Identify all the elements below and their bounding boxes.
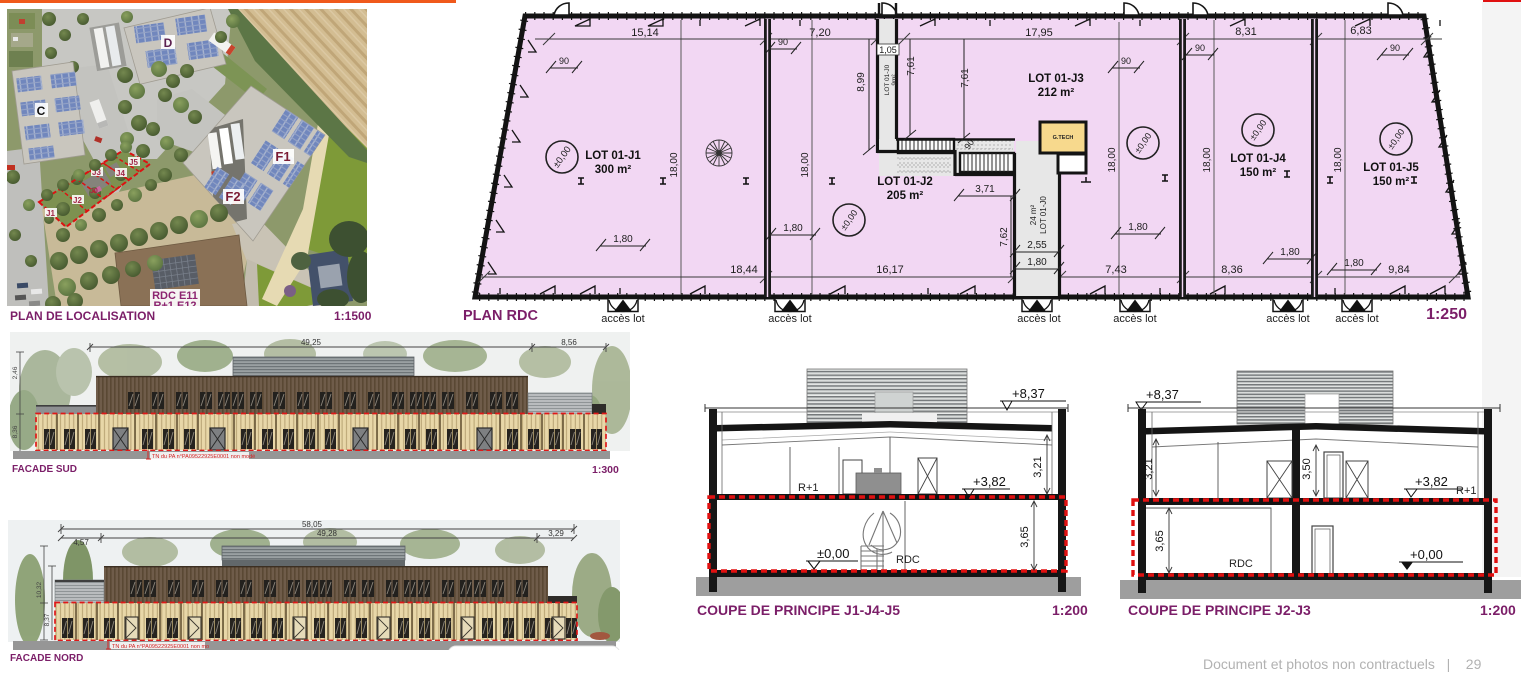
- svg-text:1,80: 1,80: [1027, 257, 1047, 268]
- svg-text:90: 90: [778, 37, 788, 47]
- svg-text:accès lot: accès lot: [768, 313, 811, 325]
- svg-text:24 m²: 24 m²: [1029, 204, 1038, 225]
- svg-text:8,36: 8,36: [1221, 264, 1242, 276]
- svg-text:R+1: R+1: [798, 482, 819, 494]
- svg-text:accès lot: accès lot: [1113, 313, 1156, 325]
- svg-text:accès lot: accès lot: [1017, 313, 1060, 325]
- svg-text:1,80: 1,80: [613, 234, 633, 245]
- svg-text:3,50: 3,50: [1301, 458, 1313, 479]
- svg-text:accès lot: accès lot: [601, 313, 644, 325]
- svg-text:J4: J4: [116, 169, 125, 178]
- svg-text:16,17: 16,17: [876, 264, 904, 276]
- svg-text:8,99: 8,99: [856, 72, 867, 92]
- svg-text:8,36: 8,36: [12, 425, 19, 438]
- svg-text:49,28: 49,28: [317, 529, 338, 538]
- svg-text:D: D: [164, 36, 173, 50]
- svg-text:RDC: RDC: [1229, 558, 1253, 570]
- svg-text:90: 90: [1390, 43, 1400, 53]
- svg-text:17,95: 17,95: [1025, 27, 1053, 39]
- svg-text:7,61: 7,61: [906, 56, 917, 76]
- svg-text:LOT 01-J0: LOT 01-J0: [884, 64, 891, 95]
- svg-text:18,00: 18,00: [800, 152, 811, 177]
- svg-text:F2: F2: [225, 189, 240, 204]
- svg-text:1,05: 1,05: [879, 45, 897, 55]
- svg-text:90: 90: [559, 56, 569, 66]
- svg-text:3,21: 3,21: [1143, 458, 1155, 479]
- svg-text:3,21: 3,21: [1032, 456, 1044, 477]
- svg-text:150 m²: 150 m²: [1373, 176, 1410, 188]
- svg-text:LOT 01-J0: LOT 01-J0: [1039, 196, 1048, 234]
- svg-text:LOT 01-J2: LOT 01-J2: [877, 176, 933, 188]
- svg-text:18,00: 18,00: [1202, 147, 1213, 172]
- svg-text:6,83: 6,83: [1350, 25, 1371, 37]
- svg-text:2,46: 2,46: [12, 366, 19, 379]
- svg-text:15,14: 15,14: [631, 27, 659, 39]
- svg-text:LOT 01-J3: LOT 01-J3: [1028, 73, 1084, 85]
- svg-text:+3,82: +3,82: [1415, 474, 1448, 489]
- svg-text:J2: J2: [73, 196, 82, 205]
- svg-text:F1: F1: [275, 149, 290, 164]
- svg-text:150 m²: 150 m²: [1240, 167, 1277, 179]
- svg-text:7,43: 7,43: [1105, 264, 1126, 276]
- svg-text:2,55: 2,55: [1027, 240, 1047, 251]
- svg-text:212 m²: 212 m²: [1038, 87, 1075, 99]
- svg-text:J0: J0: [90, 188, 98, 195]
- svg-text:18,00: 18,00: [669, 152, 680, 177]
- svg-text:9,84: 9,84: [1388, 264, 1409, 276]
- svg-text:+8,37: +8,37: [1146, 387, 1179, 402]
- svg-text:8,37: 8,37: [44, 613, 51, 626]
- svg-text:1,80: 1,80: [783, 223, 803, 234]
- svg-text:TN du PA n°PA09522925E0001 non: TN du PA n°PA09522925E0001 non mo: [112, 644, 209, 650]
- svg-text:G.TECH: G.TECH: [1053, 135, 1074, 141]
- svg-text:10,32: 10,32: [36, 581, 43, 598]
- svg-text:J1: J1: [46, 209, 55, 218]
- svg-text:3,71: 3,71: [975, 184, 995, 195]
- svg-text:R+1: R+1: [1456, 485, 1477, 497]
- svg-text:+3,82: +3,82: [973, 474, 1006, 489]
- svg-text:J5: J5: [129, 158, 138, 167]
- svg-text:205 m²: 205 m²: [887, 190, 924, 202]
- svg-text:7,62: 7,62: [999, 227, 1010, 247]
- svg-text:300 m²: 300 m²: [595, 164, 632, 176]
- svg-text:18,00: 18,00: [1333, 147, 1344, 172]
- svg-text:18,44: 18,44: [730, 264, 758, 276]
- svg-text:+8,37: +8,37: [1012, 386, 1045, 401]
- svg-text:8,31: 8,31: [1235, 26, 1256, 38]
- svg-text:3,29: 3,29: [548, 529, 564, 538]
- svg-text:±0,00: ±0,00: [817, 546, 849, 561]
- svg-text:58,05: 58,05: [302, 520, 323, 529]
- svg-text:TN du PA n°PA09522925E0001 non: TN du PA n°PA09522925E0001 non modé: [152, 454, 255, 460]
- svg-text:18,00: 18,00: [1107, 147, 1118, 172]
- svg-text:LOT 01-J4: LOT 01-J4: [1230, 153, 1286, 165]
- svg-text:3,65: 3,65: [1154, 530, 1166, 551]
- svg-text:9m²: 9m²: [891, 74, 898, 86]
- svg-text:accès lot: accès lot: [1266, 313, 1309, 325]
- svg-text:49,25: 49,25: [301, 338, 322, 347]
- svg-text:8,56: 8,56: [561, 338, 577, 347]
- svg-text:RDC: RDC: [896, 554, 920, 566]
- svg-text:R+1 E12: R+1 E12: [153, 300, 196, 306]
- svg-text:1,80: 1,80: [1128, 222, 1148, 233]
- svg-text:7,20: 7,20: [809, 27, 830, 39]
- svg-text:4,57: 4,57: [73, 538, 89, 547]
- svg-text:3,65: 3,65: [1019, 526, 1031, 547]
- svg-text:7,61: 7,61: [960, 68, 971, 88]
- svg-text:1,80: 1,80: [1280, 247, 1300, 258]
- svg-text:+0,00: +0,00: [1410, 547, 1443, 562]
- svg-text:LOT 01-J5: LOT 01-J5: [1363, 162, 1419, 174]
- svg-text:accès lot: accès lot: [1335, 313, 1378, 325]
- svg-text:90: 90: [1195, 43, 1205, 53]
- svg-text:1,80: 1,80: [1344, 258, 1364, 269]
- svg-text:LOT 01-J1: LOT 01-J1: [585, 150, 641, 162]
- svg-text:C: C: [37, 104, 46, 118]
- svg-text:90: 90: [1121, 56, 1131, 66]
